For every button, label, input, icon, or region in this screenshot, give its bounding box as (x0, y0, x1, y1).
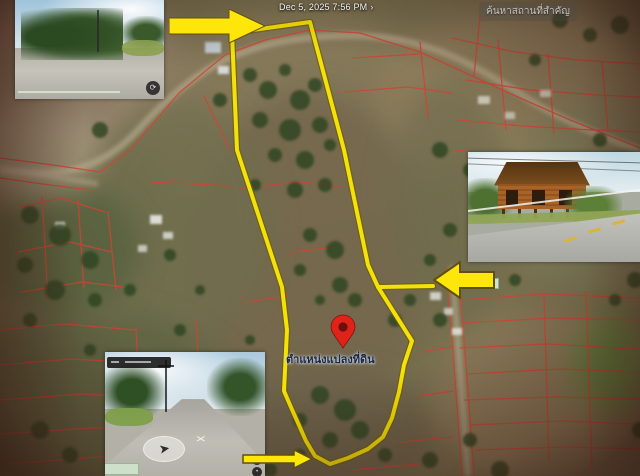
inset-trees (21, 8, 123, 60)
inset-status-strip (18, 91, 120, 93)
road-marking: ✕ (195, 434, 207, 445)
inset-minimap-fragment (486, 278, 499, 289)
inset-trees (207, 358, 265, 416)
rotate-view-icon: ⟳ (146, 81, 160, 95)
house-roof (494, 162, 590, 186)
inset-control-icon: • (252, 467, 262, 476)
inset-grass (105, 408, 153, 426)
street-view-inset-right (468, 152, 640, 262)
street-view-inset-top-left: ⟳ (15, 0, 164, 99)
map-date-control[interactable]: Dec 5, 2025 7:56 PM› (279, 2, 374, 12)
street-view-inset-bottom-left: ✕ ➤ ⟳ • (105, 352, 265, 476)
search-placeholder-label: ค้นหาสถานที่สำคัญ (486, 6, 570, 17)
rotate-view-icon: ⟳ (252, 455, 262, 465)
house-window (506, 190, 518, 205)
chevron-right-icon: › (370, 2, 373, 12)
inset-grass (122, 40, 164, 56)
inset-header-bar (107, 357, 171, 368)
street-view-nav-arrow-icon: ➤ (143, 436, 185, 462)
search-input[interactable]: ค้นหาสถานที่สำคัญ (479, 2, 577, 21)
inset-minimap (105, 463, 139, 475)
screenshot-root: Dec 5, 2025 7:56 PM› ค้นหาสถานที่สำคัญ ต… (0, 0, 640, 476)
map-date-label: Dec 5, 2025 7:56 PM (279, 2, 367, 12)
pin-label: ตำแหน่งแปลงที่ดิน (286, 350, 375, 368)
utility-pole (97, 10, 99, 52)
